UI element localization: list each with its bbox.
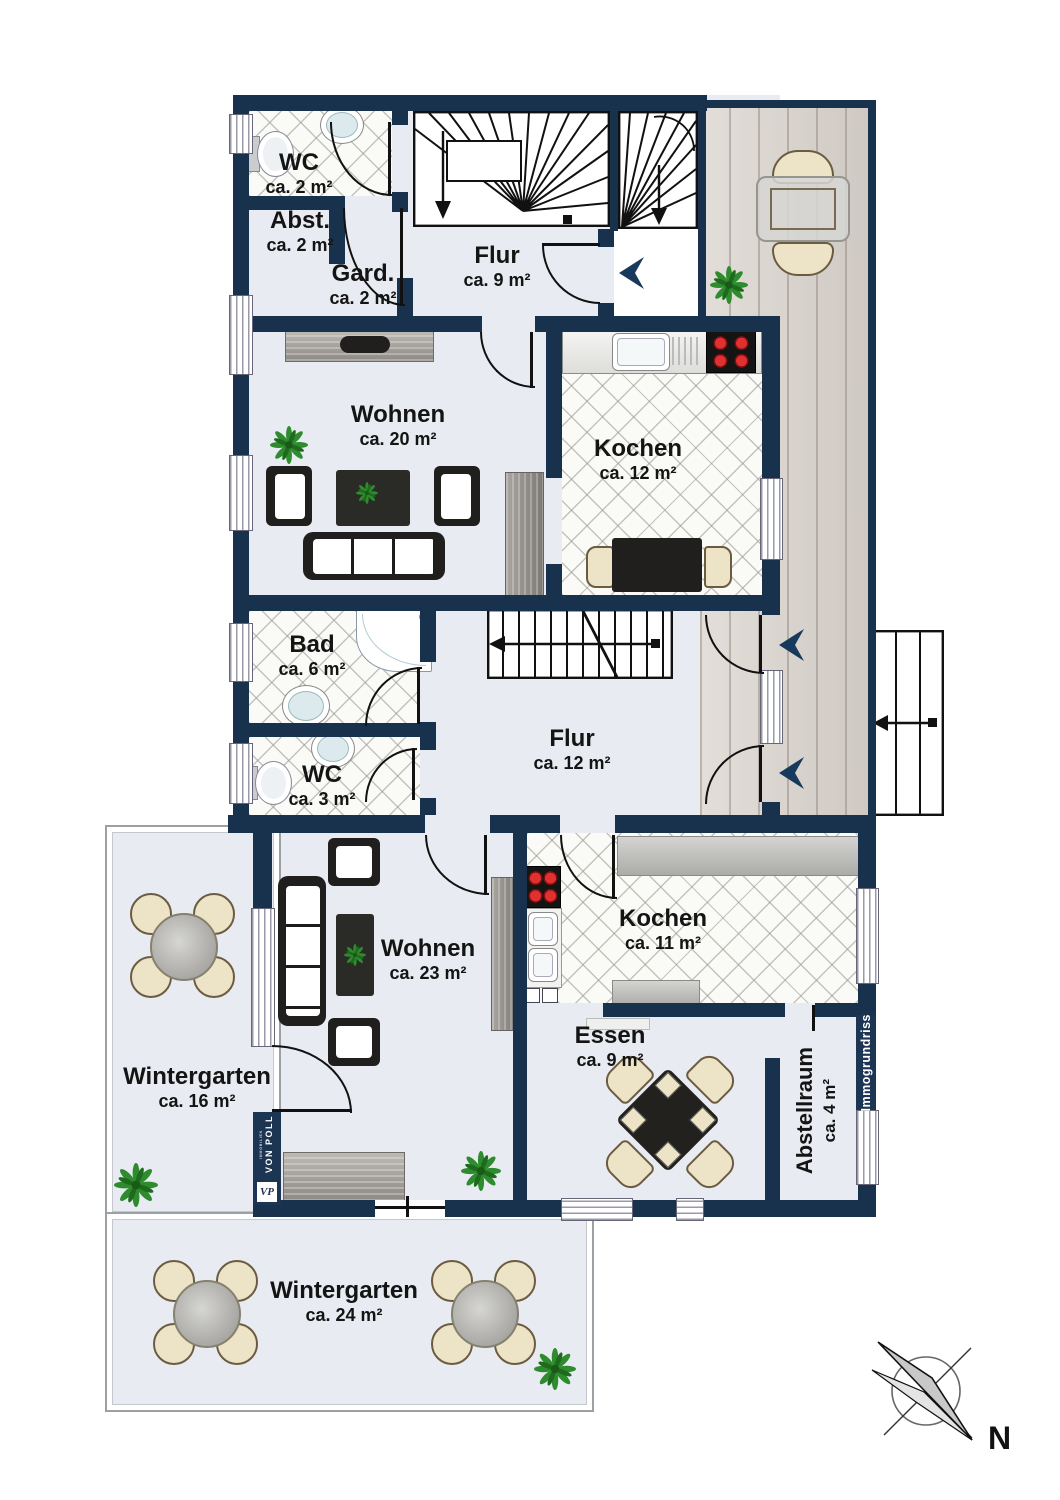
wall-segment (392, 95, 408, 125)
wall-segment (762, 802, 780, 833)
room-label-wc-3: WC ca. 3 m² (262, 762, 382, 809)
window (229, 295, 253, 375)
kitchen-sink-icon (528, 948, 558, 982)
kitchen-counter (617, 836, 859, 876)
window (229, 114, 253, 154)
room-area: ca. 24 m² (244, 1305, 444, 1325)
wall-segment (762, 332, 780, 478)
wall-segment (700, 1200, 876, 1217)
door-leaf (759, 615, 762, 672)
wall-segment (815, 1003, 860, 1017)
room-label-wohnen-20: Wohnen ca. 20 m² (318, 402, 478, 449)
drainboard (672, 337, 698, 365)
room-name: Wohnen (348, 936, 508, 963)
room-name: WC (249, 150, 349, 177)
armchair (266, 466, 312, 526)
french-door-tick (406, 1196, 409, 1217)
door-leaf (530, 332, 533, 388)
room-name: Essen (530, 1023, 690, 1050)
armchair (328, 1018, 380, 1066)
floor-plan: IMMOBILIEN VON POLL VP Immogrundriss WC … (0, 0, 1060, 1500)
room-label-kochen-11: Kochen ca. 11 m² (583, 906, 743, 953)
window (856, 1110, 879, 1185)
window (760, 670, 783, 744)
door-leaf (484, 835, 487, 895)
wall-segment (598, 303, 614, 318)
sofa (278, 876, 326, 1026)
room-name: Kochen (558, 436, 718, 463)
room-label-kochen-12: Kochen ca. 12 m² (558, 436, 718, 483)
room-name: Kochen (583, 906, 743, 933)
door-leaf (812, 1005, 815, 1031)
room-area: ca. 12 m² (492, 753, 652, 773)
wall-segment (610, 111, 618, 231)
plant-icon (270, 426, 308, 464)
von-poll-logo: IMMOBILIEN VON POLL VP (253, 1112, 281, 1205)
wall-segment (762, 558, 780, 615)
plant-icon (356, 482, 378, 504)
wall-segment (420, 798, 436, 815)
wall-segment (233, 95, 707, 111)
window (760, 478, 783, 560)
garden-table-set (132, 895, 232, 995)
plant-icon (461, 1151, 501, 1191)
staircase-winder-entry (618, 111, 698, 229)
wall-segment (233, 316, 482, 332)
room-label-wintergarten-16: Wintergarten ca. 16 m² (107, 1064, 287, 1111)
tv-on-sideboard (340, 336, 390, 353)
window (229, 623, 253, 682)
door-leaf (612, 835, 615, 899)
room-name: WC (262, 762, 382, 789)
window (561, 1198, 633, 1221)
wall-segment (765, 1058, 780, 1207)
pass-through (542, 988, 558, 1003)
armchair (434, 466, 480, 526)
plant-icon (710, 266, 748, 304)
window (229, 455, 253, 531)
armchair (328, 838, 380, 886)
room-name: Flur (492, 726, 652, 753)
kitchen-sink-icon (528, 912, 558, 946)
direction-arrow-icon (778, 628, 804, 662)
wall-segment (490, 815, 560, 833)
wall-segment (698, 111, 706, 318)
room-label-wc-upper: WC ca. 2 m² (249, 150, 349, 197)
room-name: Wintergarten (244, 1278, 444, 1305)
room-label-flur-12: Flur ca. 12 m² (492, 726, 652, 773)
window (676, 1198, 704, 1221)
dining-table (612, 538, 702, 592)
room-area: ca. 23 m² (348, 963, 508, 983)
wall-segment (420, 611, 436, 662)
room-label-bad: Bad ca. 6 m² (252, 632, 372, 679)
door-leaf (417, 667, 420, 724)
immogrundriss-text: Immogrundriss (859, 1014, 873, 1112)
wall-segment (603, 1003, 785, 1017)
sink-icon (282, 685, 330, 727)
room-name: Wintergarten (107, 1064, 287, 1091)
kitchen-sink-icon (612, 333, 670, 371)
room-name: Wohnen (318, 402, 478, 429)
compass-north-label: N (988, 1420, 1011, 1457)
wall-segment (445, 1200, 563, 1217)
room-area: ca. 11 m² (583, 933, 743, 953)
wall-segment (228, 815, 425, 833)
wall-segment (630, 1200, 678, 1217)
wall-segment (535, 316, 780, 332)
direction-arrow-icon (618, 256, 644, 290)
door-opening (375, 1200, 445, 1217)
garden-table-set (433, 1262, 533, 1362)
direction-arrow-icon (778, 756, 804, 790)
dining-set (600, 1052, 736, 1188)
chair (586, 546, 614, 588)
room-name: Gard. (303, 261, 423, 288)
room-area: ca. 4 m² (820, 1079, 840, 1142)
wall-segment (598, 229, 614, 247)
room-name: Abst. (240, 208, 360, 235)
von-poll-monogram: VP (257, 1182, 277, 1202)
wall-segment (615, 815, 876, 833)
door-leaf (759, 745, 762, 802)
wall-segment (700, 100, 876, 108)
room-label-wohnen-23: Wohnen ca. 23 m² (348, 936, 508, 983)
wall-segment (513, 1007, 527, 1207)
plant-icon (534, 1348, 576, 1390)
room-area: ca. 2 m² (240, 235, 360, 255)
room-name: Flur (437, 243, 557, 270)
staircase-winder-main (413, 111, 610, 227)
room-label-abst: Abst. ca. 2 m² (240, 208, 360, 255)
window (856, 888, 879, 984)
staircase-exterior (872, 630, 944, 816)
wall-segment (233, 595, 780, 611)
room-area: ca. 16 m² (107, 1091, 287, 1111)
window (251, 908, 275, 1047)
window (229, 743, 253, 804)
french-door-line (375, 1206, 445, 1209)
stove-icon (706, 331, 756, 373)
wall-segment (253, 833, 272, 908)
room-area: ca. 2 m² (303, 288, 423, 308)
von-poll-logo-text: VON POLL (265, 1115, 274, 1173)
stove-icon (525, 866, 561, 908)
room-name: Bad (252, 632, 372, 659)
room-area: ca. 3 m² (262, 789, 382, 809)
room-area: ca. 9 m² (530, 1050, 690, 1070)
room-label-wintergarten-24: Wintergarten ca. 24 m² (244, 1278, 444, 1325)
room-label-gard: Gard. ca. 2 m² (303, 261, 423, 308)
sofa (303, 532, 445, 580)
wintergarten-16-floor (112, 832, 274, 1212)
wall-segment (858, 982, 876, 1015)
staircase-straight (487, 609, 673, 679)
garden-table-set (155, 1262, 255, 1362)
wall-segment (858, 833, 876, 888)
room-label-flur-upper: Flur ca. 9 m² (437, 243, 557, 290)
room-area: ca. 12 m² (558, 463, 718, 483)
room-label-essen: Essen ca. 9 m² (530, 1023, 690, 1070)
immogrundriss-watermark: Immogrundriss (856, 1015, 876, 1110)
room-area: ca. 20 m² (318, 429, 478, 449)
sideboard (283, 1152, 405, 1202)
door-leaf (412, 748, 415, 800)
chair (704, 546, 732, 588)
room-area: ca. 9 m² (437, 270, 557, 290)
room-area: ca. 6 m² (252, 659, 372, 679)
room-name: Abstellraum (792, 1047, 818, 1174)
door-leaf (388, 122, 391, 196)
plant-icon (114, 1163, 158, 1207)
room-area: ca. 2 m² (249, 177, 349, 197)
wall-segment (513, 833, 527, 1007)
cabinet (505, 472, 544, 596)
wall-segment (868, 100, 876, 815)
room-label-abstellraum: Abstellraum ca. 4 m² (786, 1036, 846, 1186)
terrace-table (756, 176, 850, 242)
